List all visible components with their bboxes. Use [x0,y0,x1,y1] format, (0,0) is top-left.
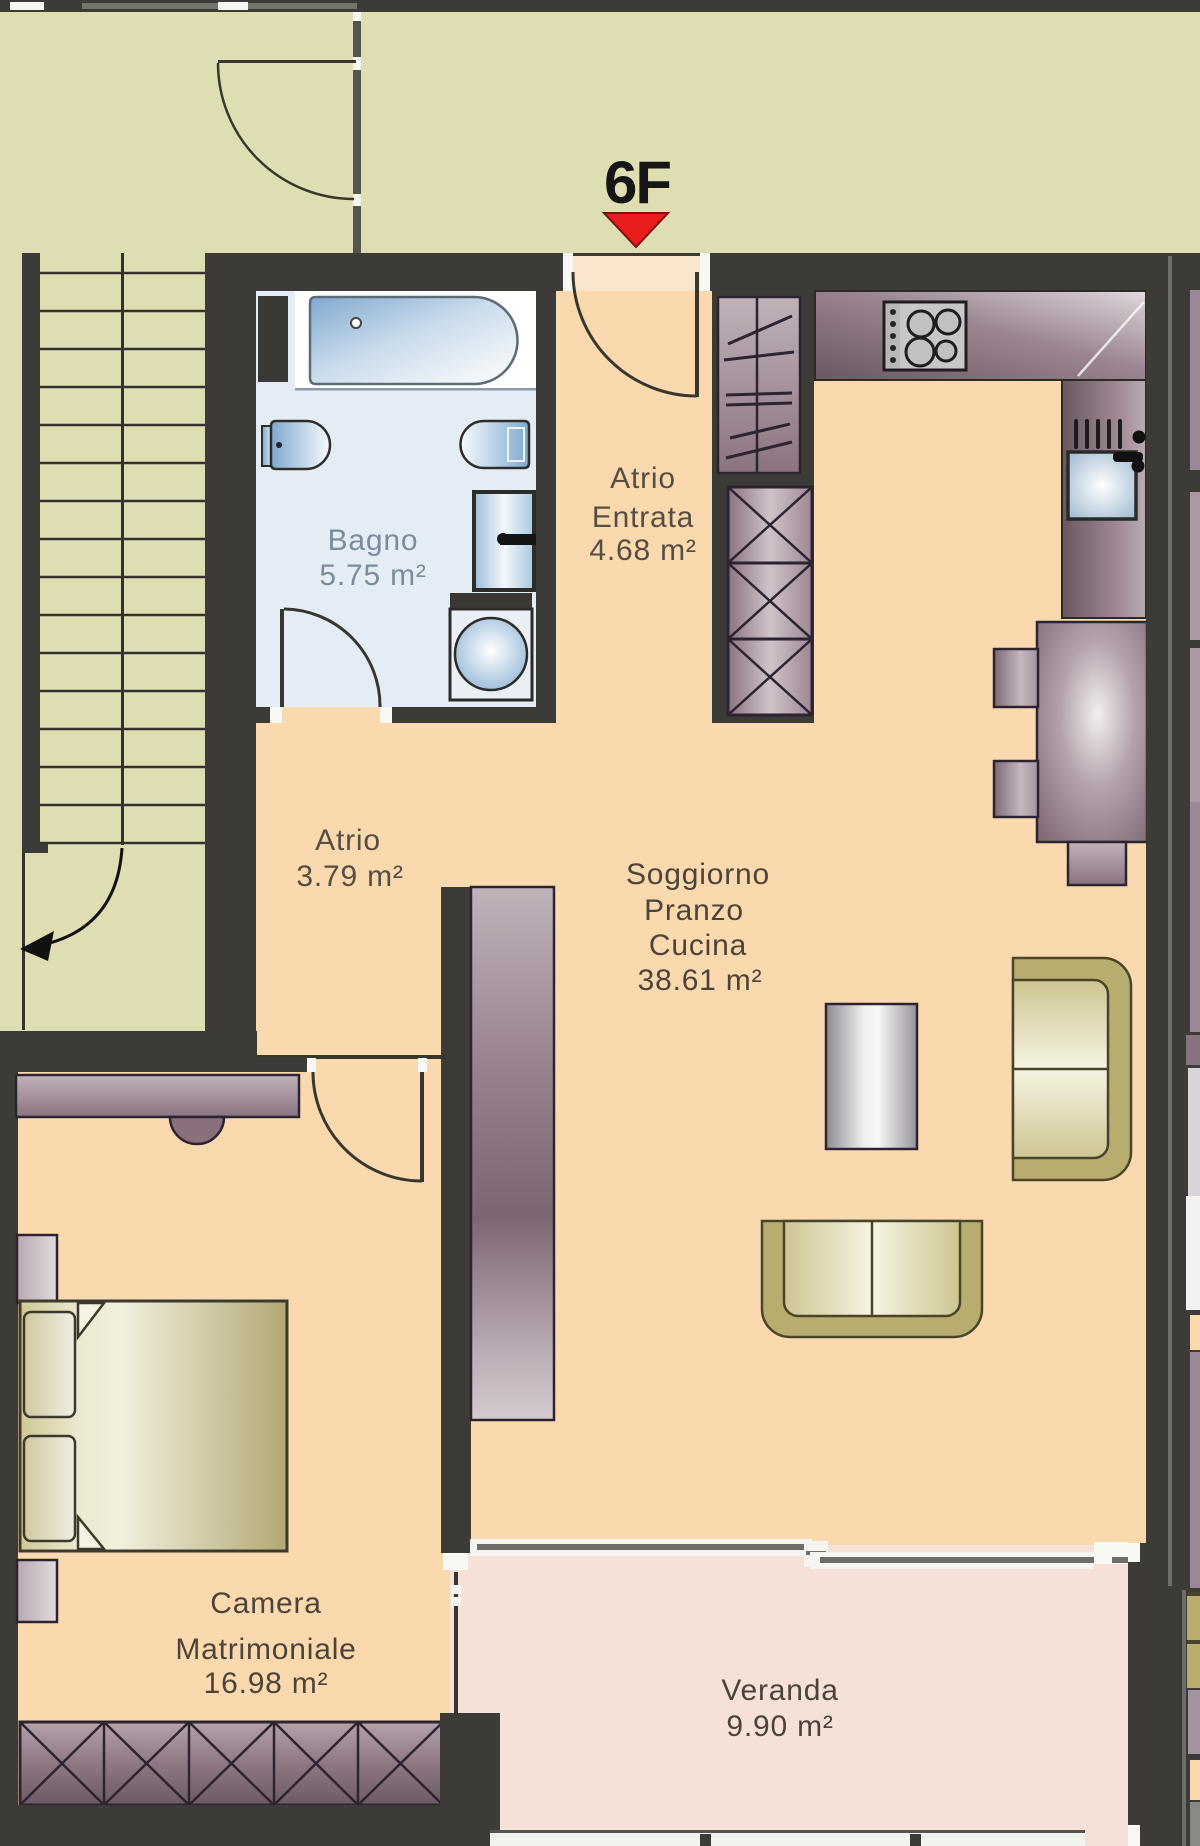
svg-text:Veranda: Veranda [721,1674,838,1707]
svg-text:Bagno: Bagno [328,524,419,557]
svg-text:Atrio: Atrio [610,462,676,495]
svg-text:Matrimoniale: Matrimoniale [175,1633,356,1666]
svg-text:5.75 m²: 5.75 m² [319,559,426,592]
svg-text:6F: 6F [604,149,670,216]
svg-text:Pranzo: Pranzo [644,894,744,927]
svg-text:Entrata: Entrata [592,501,694,534]
svg-text:4.68 m²: 4.68 m² [589,534,696,567]
svg-text:9.90 m²: 9.90 m² [726,1710,833,1743]
svg-text:Cucina: Cucina [649,929,747,962]
svg-text:Atrio: Atrio [315,824,381,857]
svg-text:Camera: Camera [210,1587,322,1620]
svg-text:16.98 m²: 16.98 m² [204,1667,329,1700]
svg-text:Soggiorno: Soggiorno [626,858,770,891]
svg-text:3.79 m²: 3.79 m² [296,860,403,893]
svg-text:38.61 m²: 38.61 m² [638,964,763,997]
